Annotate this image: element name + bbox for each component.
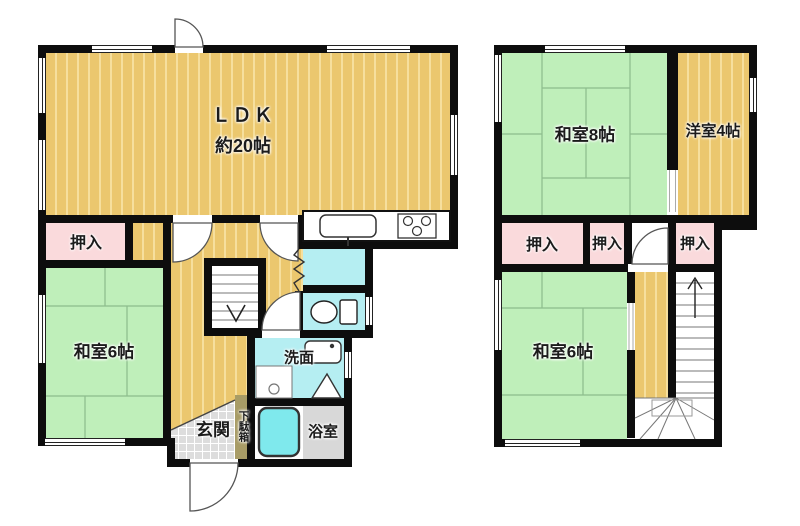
label-senmen: 洗面 <box>284 347 314 368</box>
label-yoshitsu4-2f: 洋室4帖 <box>685 119 740 141</box>
bath-tub-area-1f <box>255 406 303 459</box>
label-ldk-size: 約20帖 <box>215 132 271 158</box>
wall <box>163 215 171 438</box>
wall <box>258 258 266 336</box>
label-ldk: ＬＤＫ <box>211 101 274 128</box>
window <box>545 45 625 53</box>
label-oshiire-2f-mid: 押入 <box>592 233 622 254</box>
wall <box>494 45 757 53</box>
window <box>505 439 580 447</box>
window <box>38 58 46 113</box>
stairs-1f <box>212 266 258 328</box>
wall <box>627 272 635 438</box>
label-washitsu6-2f: 和室6帖 <box>533 338 593 363</box>
toilet-anteroom-1f <box>303 249 365 285</box>
window <box>450 115 458 175</box>
label-genkan: 玄関 <box>196 416 230 441</box>
label-oshiire-1f: 押入 <box>70 229 102 253</box>
wall <box>295 241 458 249</box>
window <box>38 295 46 363</box>
floorplan-canvas: ＬＤＫ 約20帖 押入 和室6帖 玄関 下駄箱 洗面 浴室 和室8帖 洋室4帖 … <box>0 0 800 526</box>
hall-doorcell-2f <box>632 223 668 264</box>
label-getabako: 下駄箱 <box>237 410 252 442</box>
stairs-2f <box>676 272 714 398</box>
window <box>365 297 373 325</box>
window <box>494 280 502 350</box>
wall <box>125 215 133 260</box>
wall <box>668 223 676 264</box>
wall <box>494 215 757 223</box>
door-opening <box>173 215 212 223</box>
door-opening <box>175 45 203 53</box>
wall <box>303 285 365 293</box>
wall <box>295 291 303 330</box>
window <box>38 140 46 210</box>
door-opening <box>260 215 298 223</box>
label-washitsu8-2f: 和室8帖 <box>555 121 615 146</box>
wall <box>668 264 722 272</box>
room-ldk-kitchen-strip <box>295 215 450 241</box>
wall <box>300 330 373 338</box>
label-washitsu6-1f: 和室6帖 <box>74 338 134 363</box>
door-opening <box>190 459 238 467</box>
window <box>494 55 502 122</box>
label-oshiire-2f-right: 押入 <box>680 233 710 254</box>
door-arc-ldk-top <box>175 19 203 47</box>
door-arc-entrance <box>190 463 238 511</box>
hallway-2f-strip <box>635 272 668 398</box>
wall <box>204 258 266 266</box>
door-opening <box>262 330 300 338</box>
wall <box>494 264 628 272</box>
wall <box>204 258 212 336</box>
window <box>45 438 125 446</box>
door-opening <box>632 264 668 272</box>
stairs-winder-2f <box>635 398 714 439</box>
label-yokushitsu: 浴室 <box>308 421 338 442</box>
label-oshiire-2f-left: 押入 <box>526 231 558 255</box>
wall <box>749 45 757 230</box>
toilet-room-1f <box>303 293 365 330</box>
window <box>327 45 410 53</box>
wall <box>714 223 722 447</box>
wall <box>38 215 175 223</box>
wall <box>583 223 590 264</box>
window <box>749 78 757 112</box>
window <box>92 45 152 53</box>
wall <box>668 272 676 398</box>
wall <box>212 215 260 223</box>
wall <box>38 260 171 268</box>
wall <box>667 45 678 212</box>
wall <box>247 330 262 338</box>
wall <box>624 223 632 264</box>
window <box>344 352 352 378</box>
wall <box>247 398 352 406</box>
